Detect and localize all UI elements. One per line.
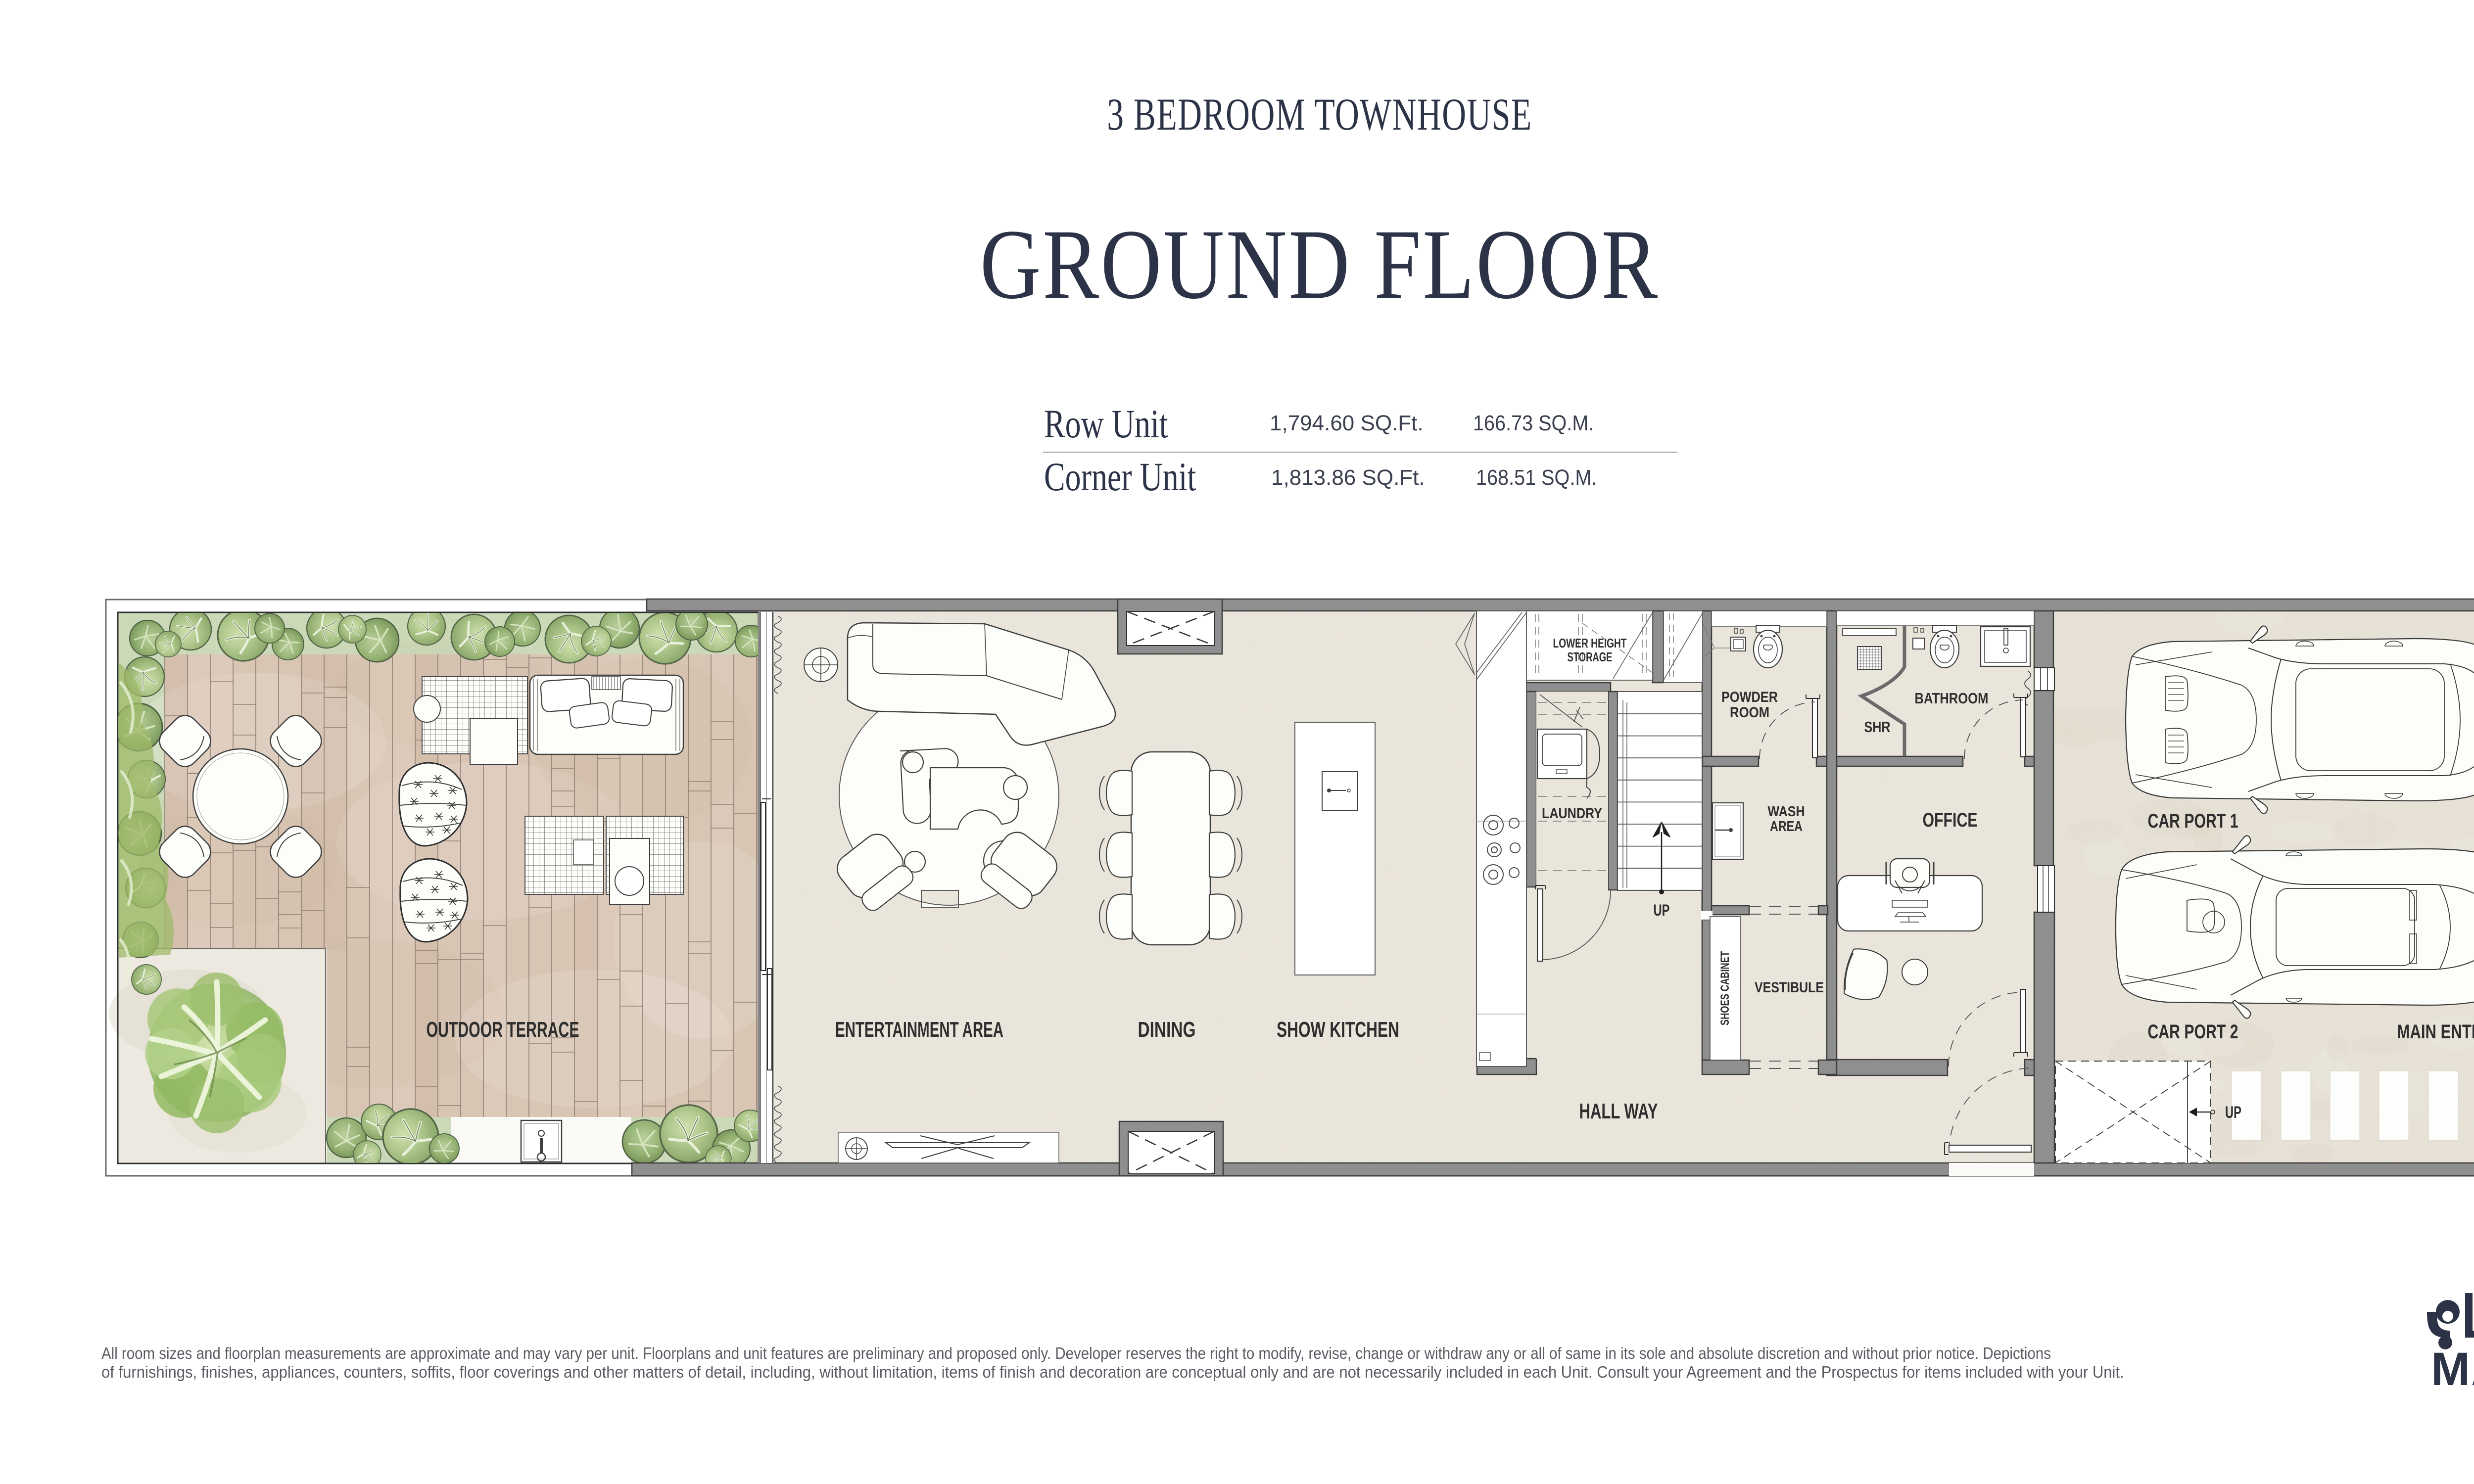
svg-text:SHOES CABINET: SHOES CABINET	[1718, 951, 1732, 1025]
svg-text:WASH: WASH	[1768, 804, 1805, 820]
svg-text:CAR PORT 2: CAR PORT 2	[2148, 1021, 2238, 1043]
svg-text:ENTERTAINMENT AREA: ENTERTAINMENT AREA	[835, 1018, 1003, 1042]
svg-text:UP: UP	[2225, 1103, 2241, 1122]
svg-text:UP: UP	[1654, 901, 1670, 919]
svg-text:MAIN ENTRANCE: MAIN ENTRANCE	[2397, 1021, 2474, 1043]
svg-text:SHR: SHR	[1864, 718, 1891, 736]
svg-text:SHOW KITCHEN: SHOW KITCHEN	[1277, 1018, 1399, 1042]
svg-text:ROOM: ROOM	[1730, 704, 1769, 721]
svg-text:LAUNDRY: LAUNDRY	[1542, 805, 1602, 822]
svg-text:BATHROOM: BATHROOM	[1915, 690, 1989, 707]
svg-text:CAR PORT 1: CAR PORT 1	[2148, 810, 2238, 832]
svg-text:VESTIBULE: VESTIBULE	[1755, 979, 1824, 996]
svg-text:DINING: DINING	[1138, 1018, 1196, 1042]
svg-text:LOWER HEIGHT: LOWER HEIGHT	[1553, 636, 1627, 650]
svg-text:STORAGE: STORAGE	[1568, 649, 1613, 664]
svg-text:OFFICE: OFFICE	[1923, 809, 1978, 831]
svg-text:POWDER: POWDER	[1721, 689, 1778, 705]
svg-text:OUTDOOR TERRACE: OUTDOOR TERRACE	[427, 1018, 579, 1042]
svg-text:AREA: AREA	[1770, 819, 1803, 835]
svg-text:MAG: MAG	[2431, 1343, 2474, 1395]
svg-text:HALL WAY: HALL WAY	[1579, 1099, 1658, 1123]
